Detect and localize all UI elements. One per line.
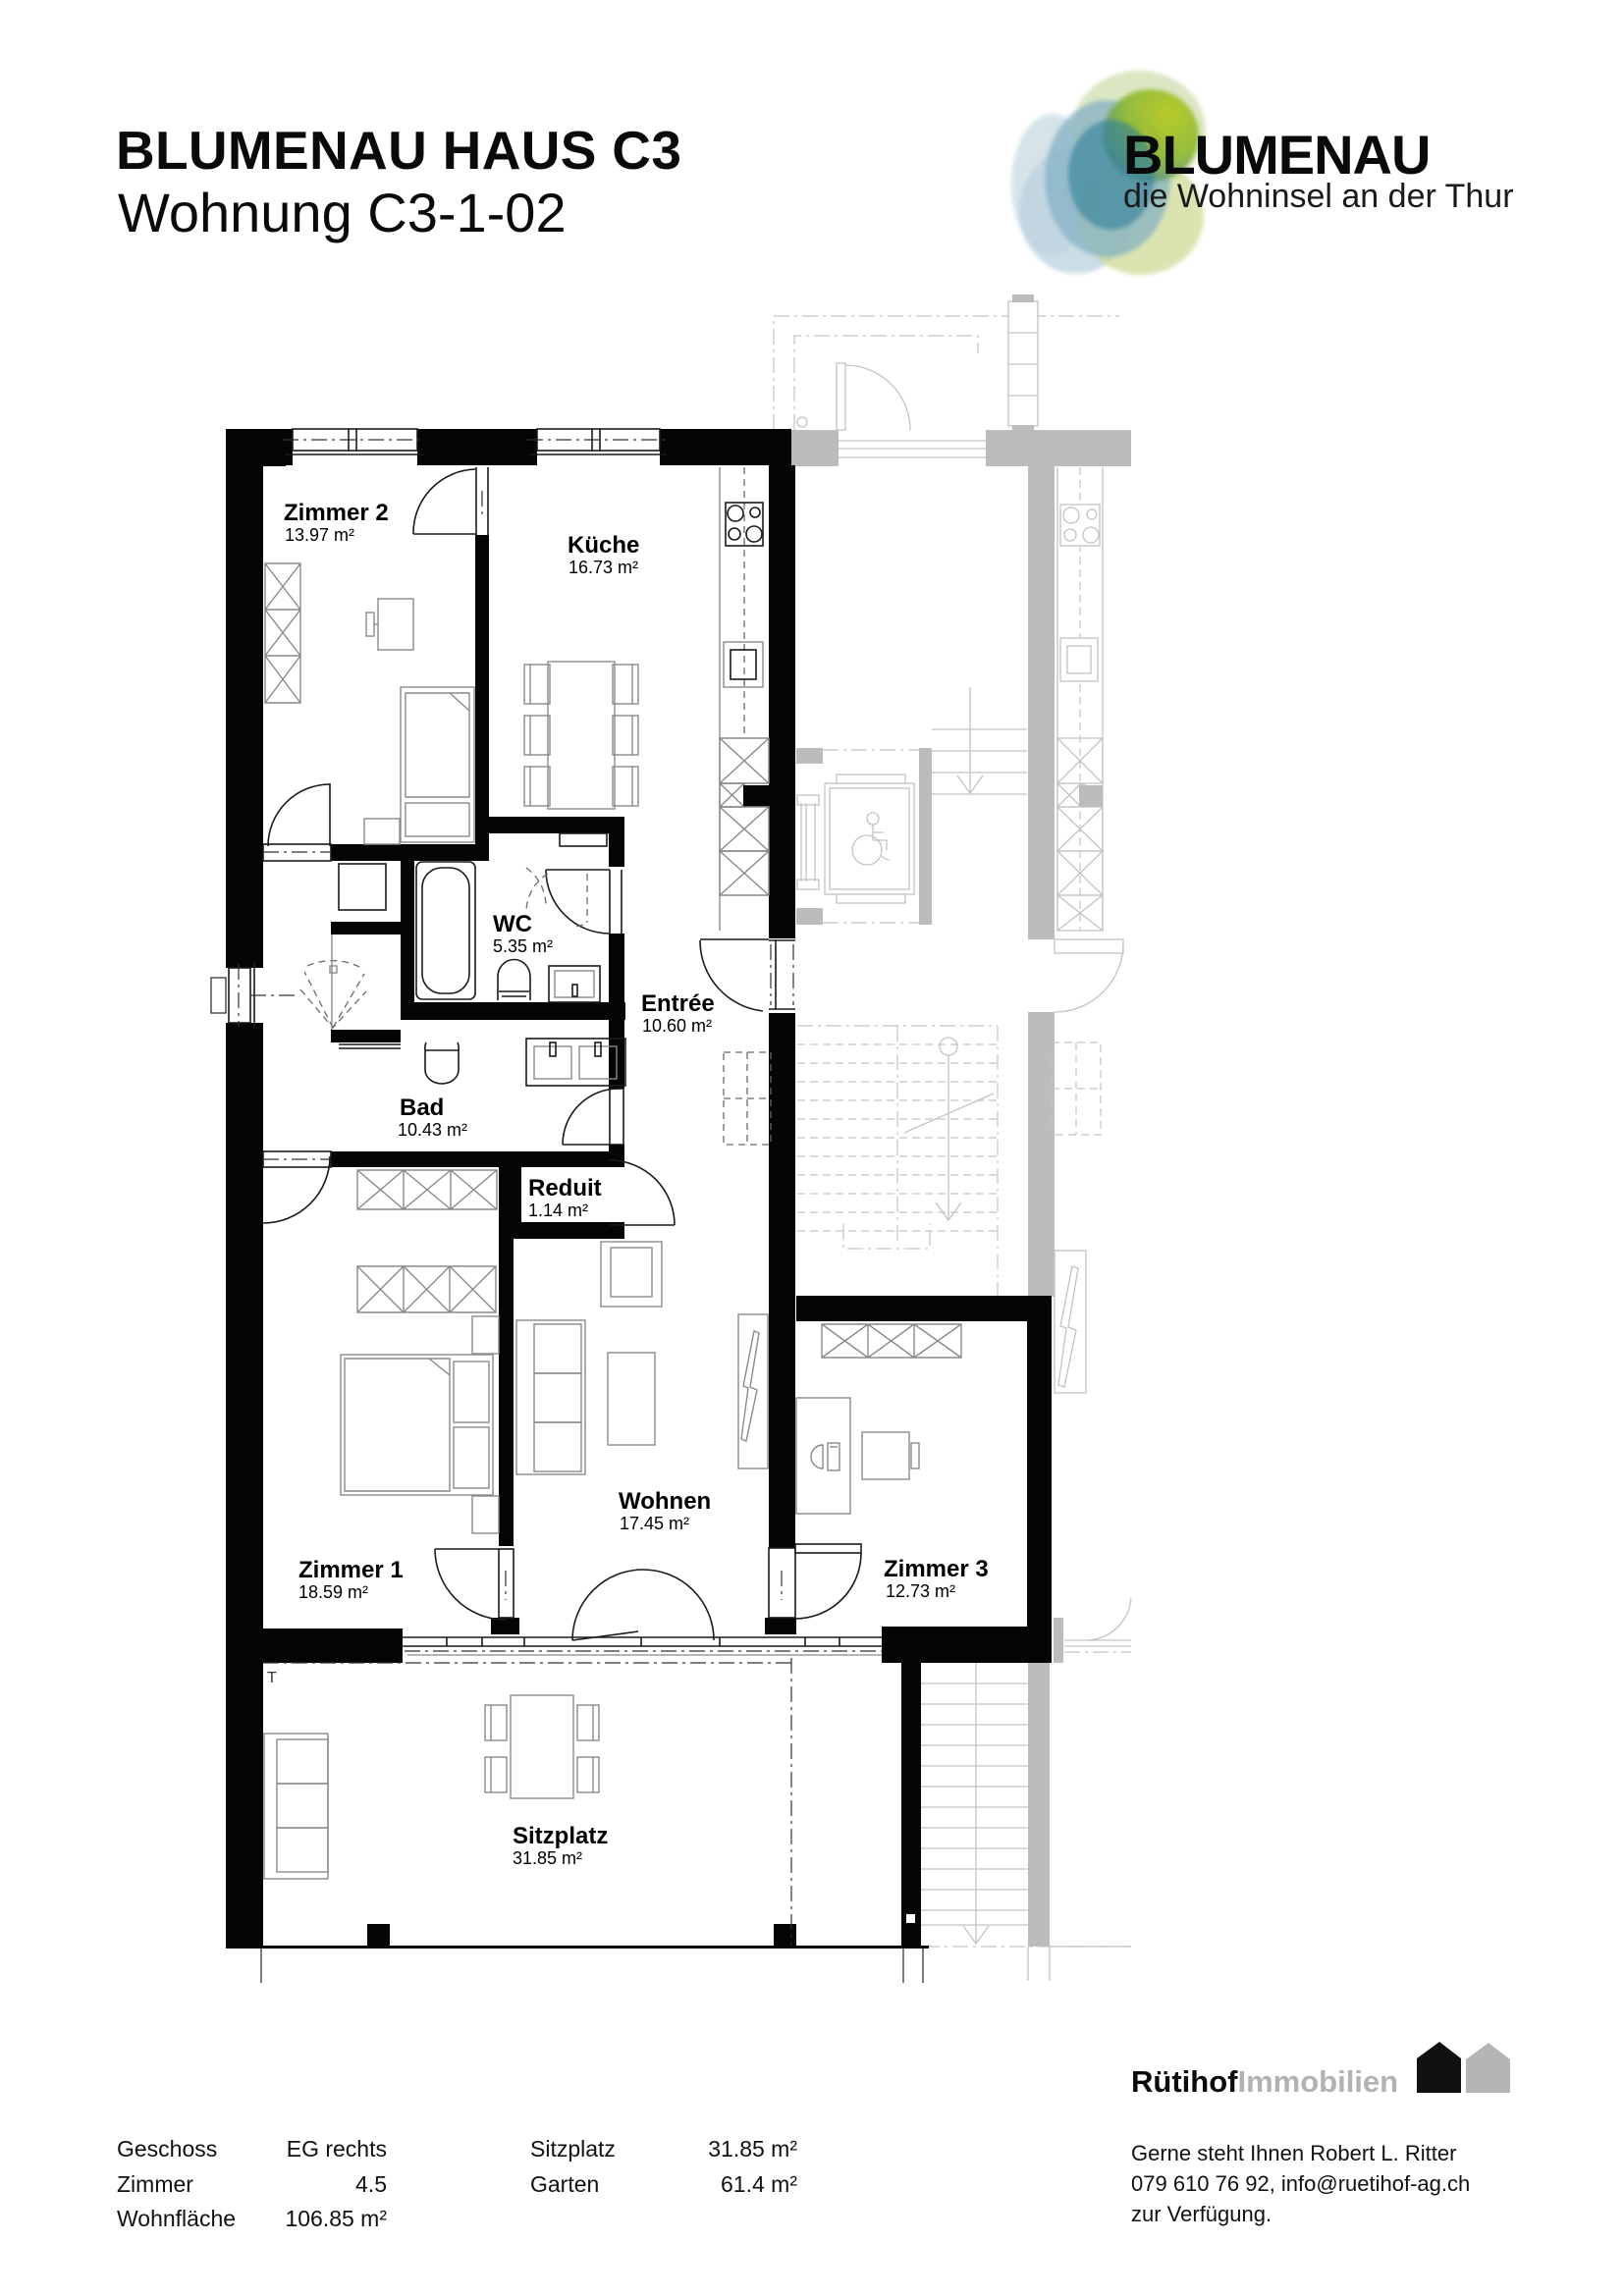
- svg-text:T: T: [267, 1670, 277, 1686]
- svg-text:10.43 m²: 10.43 m²: [398, 1120, 467, 1140]
- svg-text:die Wohninsel an der Thur: die Wohninsel an der Thur: [1123, 178, 1514, 215]
- svg-text:Wohnfläche: Wohnfläche: [117, 2206, 236, 2231]
- svg-text:17.45 m²: 17.45 m²: [620, 1514, 689, 1533]
- svg-text:Wohnung C3-1-02: Wohnung C3-1-02: [118, 182, 567, 243]
- svg-text:EG rechts: EG rechts: [287, 2136, 387, 2162]
- svg-text:Zimmer 1: Zimmer 1: [298, 1557, 404, 1583]
- svg-text:zur Verfügung.: zur Verfügung.: [1131, 2202, 1272, 2226]
- svg-text:RütihofImmobilien: RütihofImmobilien: [1131, 2064, 1398, 2099]
- svg-text:BLUMENAU HAUS C3: BLUMENAU HAUS C3: [116, 120, 681, 181]
- svg-text:Reduit: Reduit: [528, 1175, 602, 1201]
- svg-text:12.73 m²: 12.73 m²: [886, 1581, 955, 1601]
- svg-text:Gerne steht Ihnen Robert L. Ri: Gerne steht Ihnen Robert L. Ritter: [1131, 2141, 1456, 2165]
- svg-text:1.14 m²: 1.14 m²: [528, 1201, 588, 1220]
- svg-text:61.4 m²: 61.4 m²: [721, 2171, 797, 2197]
- svg-text:5.35 m²: 5.35 m²: [493, 936, 553, 956]
- svg-text:Zimmer: Zimmer: [117, 2171, 193, 2197]
- svg-text:WC: WC: [493, 911, 532, 937]
- svg-text:Entrée: Entrée: [641, 990, 715, 1017]
- svg-text:079 610 76 92, info@ruetihof-a: 079 610 76 92, info@ruetihof-ag.ch: [1131, 2171, 1470, 2196]
- svg-text:4.5: 4.5: [355, 2171, 387, 2197]
- svg-text:13.97 m²: 13.97 m²: [285, 525, 354, 545]
- svg-text:Garten: Garten: [530, 2171, 599, 2197]
- svg-text:106.85 m²: 106.85 m²: [285, 2206, 387, 2231]
- svg-text:Zimmer 2: Zimmer 2: [284, 500, 389, 526]
- svg-text:Geschoss: Geschoss: [117, 2136, 217, 2162]
- svg-text:18.59 m²: 18.59 m²: [298, 1582, 368, 1602]
- svg-text:10.60 m²: 10.60 m²: [642, 1016, 712, 1036]
- svg-text:Sitzplatz: Sitzplatz: [530, 2136, 616, 2162]
- svg-text:16.73 m²: 16.73 m²: [568, 558, 638, 577]
- svg-text:Küche: Küche: [568, 532, 639, 559]
- svg-text:Wohnen: Wohnen: [619, 1488, 711, 1515]
- svg-text:Bad: Bad: [400, 1095, 444, 1121]
- svg-text:31.85 m²: 31.85 m²: [708, 2136, 797, 2162]
- svg-text:Zimmer 3: Zimmer 3: [884, 1556, 989, 1582]
- svg-text:Sitzplatz: Sitzplatz: [513, 1823, 608, 1849]
- svg-text:31.85 m²: 31.85 m²: [513, 1848, 582, 1868]
- svg-text:BLUMENAU: BLUMENAU: [1123, 124, 1430, 186]
